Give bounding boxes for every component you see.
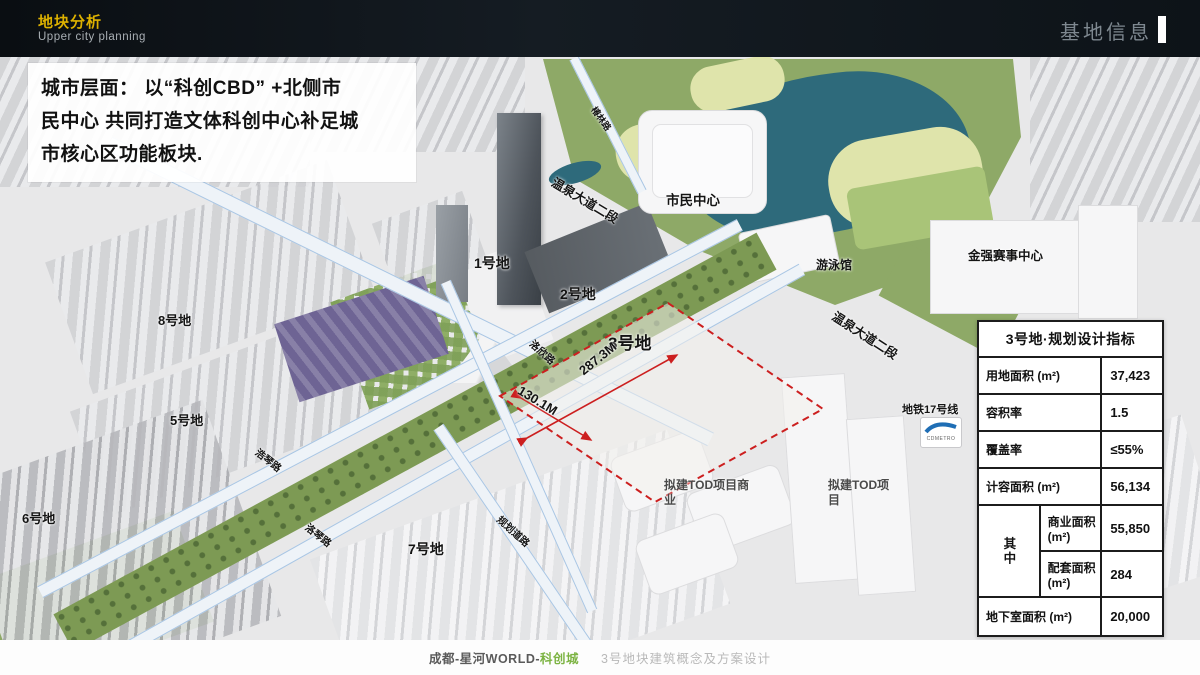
footer-brand: 科创城 <box>540 648 579 667</box>
planning-slide: 椿林路 温泉大道二段 温泉大道二段 市民中心 游泳馆 金强赛事中心 1号地 2号… <box>0 0 1200 675</box>
label-civic-center: 市民中心 <box>666 189 720 209</box>
row-ancillary-label: 配套面积 (m²) <box>1040 551 1102 597</box>
row-gfa-value: 56,134 <box>1101 468 1163 505</box>
label-plot5: 5号地 <box>170 410 203 429</box>
row-coverage-label: 覆盖率 <box>978 431 1101 468</box>
metro-logo: CDMETRO <box>920 417 962 448</box>
row-coverage-value: ≤55% <box>1101 431 1163 468</box>
statement-line-1: 城市层面： 以“科创CBD” +北侧市 <box>41 72 403 105</box>
label-jinqiang-sports-center: 金强赛事中心 <box>968 245 1043 264</box>
footer-doc-title: 3号地块建筑概念及方案设计 <box>601 648 771 667</box>
label-plot8: 8号地 <box>158 310 191 329</box>
plot3-spec-table: 3号地·规划设计指标 用地面积 (m²) 37,423 容积率 1.5 覆盖率 … <box>977 320 1164 637</box>
row-far-value: 1.5 <box>1101 394 1163 431</box>
section-title: 基地信息 <box>1060 16 1152 45</box>
sports-center-building <box>930 220 1084 314</box>
tower-east <box>1078 205 1138 319</box>
row-basement-label: 地下室面积 (m²) <box>978 597 1101 636</box>
header-bar: 地块分析 Upper city planning 基地信息 <box>0 0 1200 57</box>
building-cluster-east <box>1030 57 1200 222</box>
label-wenquan-avenue-right: 温泉大道二段 <box>829 306 902 363</box>
row-land-area-label: 用地面积 (m²) <box>978 357 1101 394</box>
label-swimming-hall: 游泳馆 <box>816 256 852 273</box>
row-gfa-label: 计容面积 (m²) <box>978 468 1101 505</box>
row-commercial-value: 55,850 <box>1101 505 1163 551</box>
city-statement: 城市层面： 以“科创CBD” +北侧市 民中心 共同打造文体科创中心补足城 市核… <box>28 63 416 182</box>
label-tod-project: 拟建TOD项目 <box>828 478 890 508</box>
table-title: 3号地·规划设计指标 <box>978 321 1163 357</box>
label-plot7: 7号地 <box>408 539 444 559</box>
group-label: 其中 <box>978 505 1040 597</box>
metro-logo-text: CDMETRO <box>927 436 956 442</box>
page-title: 地块分析 <box>38 11 102 32</box>
label-plot2: 2号地 <box>560 284 596 304</box>
statement-line-2: 民中心 共同打造文体科创中心补足城 <box>41 105 403 138</box>
row-commercial-label: 商业面积 (m²) <box>1040 505 1102 551</box>
footer-project: 成都-星河WORLD- <box>429 648 540 667</box>
row-far-label: 容积率 <box>978 394 1101 431</box>
section-title-bar <box>1158 16 1166 43</box>
row-basement-value: 20,000 <box>1101 597 1163 636</box>
label-metro-line-17: 地铁17号线 <box>902 401 958 417</box>
metro-swoosh-icon <box>923 418 959 436</box>
statement-line-3: 市核心区功能板块. <box>41 138 403 171</box>
footer: 成都-星河WORLD- 科创城 3号地块建筑概念及方案设计 <box>0 640 1200 675</box>
row-ancillary-value: 284 <box>1101 551 1163 597</box>
label-tod-commercial: 拟建TOD项目商业 <box>664 478 752 508</box>
row-land-area-value: 37,423 <box>1101 357 1163 394</box>
label-plot1: 1号地 <box>474 253 510 273</box>
label-plot6: 6号地 <box>22 508 55 527</box>
page-subtitle: Upper city planning <box>38 31 146 43</box>
